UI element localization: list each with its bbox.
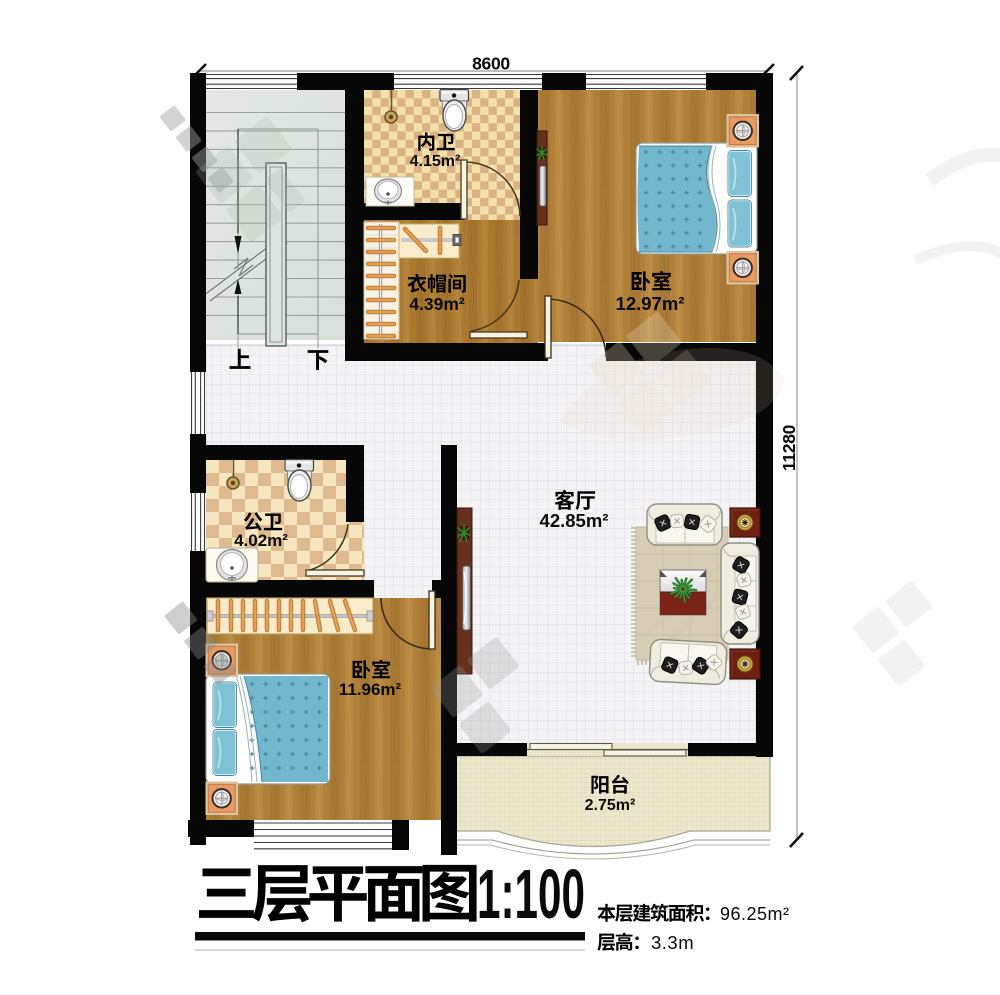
svg-text:4.02m²: 4.02m² (234, 531, 288, 550)
svg-text:4.15m²: 4.15m² (410, 153, 461, 170)
svg-text:4.39m²: 4.39m² (409, 294, 465, 314)
svg-text:3.3m: 3.3m (651, 932, 694, 953)
svg-text:11280: 11280 (779, 424, 799, 471)
svg-text:96.25m²: 96.25m² (720, 904, 790, 924)
svg-text:12.97m²: 12.97m² (616, 293, 685, 314)
svg-text:11.96m²: 11.96m² (339, 680, 402, 699)
svg-text:8600: 8600 (472, 54, 510, 74)
svg-text:1:100: 1:100 (477, 855, 585, 933)
svg-text:2.75m²: 2.75m² (585, 797, 636, 814)
svg-text:42.85m²: 42.85m² (540, 510, 609, 531)
